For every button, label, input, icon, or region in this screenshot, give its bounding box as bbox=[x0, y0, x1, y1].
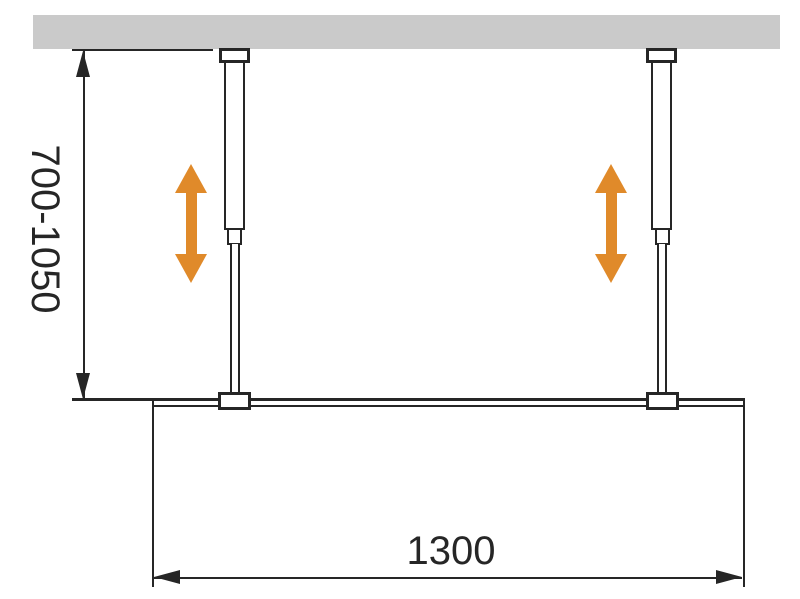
dimension-arrow-right-icon bbox=[716, 570, 742, 584]
glass-panel-top-edge bbox=[72, 398, 745, 401]
dimension-arrow-down-icon bbox=[76, 373, 90, 399]
glass-panel-right-edge bbox=[743, 398, 745, 587]
adjustment-collar bbox=[655, 228, 670, 245]
glass-panel-left-edge bbox=[152, 398, 154, 587]
glass-clamp-bracket bbox=[218, 392, 251, 410]
arrow-head-down-icon bbox=[595, 254, 627, 283]
outer-tube bbox=[224, 61, 245, 230]
glass-clamp-bracket bbox=[646, 392, 679, 410]
dimension-drawing: 700-1050 1300 bbox=[0, 0, 800, 599]
width-dimension-label: 1300 bbox=[407, 531, 496, 571]
inner-rod bbox=[230, 244, 240, 394]
vertical-dimension-line bbox=[83, 51, 85, 399]
support-rod-right bbox=[646, 48, 679, 410]
arrow-head-down-icon bbox=[175, 254, 207, 283]
inner-rod bbox=[657, 244, 667, 394]
height-adjust-arrow-left-icon bbox=[175, 164, 208, 283]
height-range-dimension-label: 700-1050 bbox=[25, 144, 65, 313]
arrow-shaft bbox=[186, 189, 197, 258]
height-adjust-arrow-right-icon bbox=[595, 164, 628, 283]
ceiling-band bbox=[33, 15, 780, 49]
horizontal-dimension-line bbox=[154, 577, 742, 579]
arrow-shaft bbox=[606, 189, 617, 258]
dimension-arrow-left-icon bbox=[154, 570, 180, 584]
dimension-arrow-up-icon bbox=[76, 51, 90, 77]
top-extension-line bbox=[72, 49, 213, 51]
adjustment-collar bbox=[227, 228, 242, 245]
support-rod-left bbox=[218, 48, 251, 410]
outer-tube bbox=[651, 61, 672, 230]
